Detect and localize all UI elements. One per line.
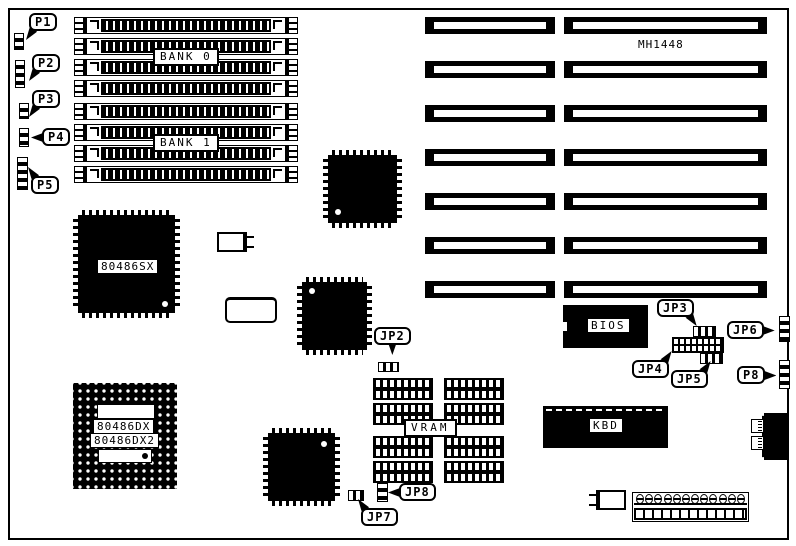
isa-slot: [425, 193, 555, 210]
callout-jp2: JP2: [374, 327, 411, 345]
isa-slot: [425, 17, 555, 34]
kbd-label: KBD: [589, 418, 623, 433]
keyboard-connector: [762, 413, 787, 460]
pga-key-bar: [97, 404, 155, 419]
jumper-jp5: [700, 353, 723, 364]
callout-jp3: JP3: [657, 299, 694, 317]
qfp-chip: [328, 155, 397, 223]
vram-socket: [373, 461, 433, 483]
isa-slot: [564, 17, 767, 34]
isa-slot: [425, 281, 555, 298]
simm-socket: [74, 80, 298, 97]
qfp-chip: [302, 282, 367, 350]
isa-slot: [425, 61, 555, 78]
simm-socket: [74, 166, 298, 183]
crystal-component: [217, 232, 245, 252]
isa-slot: [564, 281, 767, 298]
callout-p1: P1: [29, 13, 57, 31]
isa-slot: [564, 149, 767, 166]
isa-slot: [564, 61, 767, 78]
header-jp4: [672, 337, 724, 353]
callout-jp6: JP6: [727, 321, 764, 339]
callout-p5: P5: [31, 176, 59, 194]
isa-slot: [564, 193, 767, 210]
simm-socket: [74, 103, 298, 120]
callout-jp5: JP5: [671, 370, 708, 388]
connector-p1: [14, 33, 24, 50]
keyboard-connector-tab: [751, 419, 764, 433]
bios-label: BIOS: [587, 318, 630, 333]
callout-p4: P4: [42, 128, 70, 146]
jumper-jp2: [378, 362, 399, 372]
vram-socket: [444, 436, 504, 458]
callout-jp8: JP8: [399, 483, 436, 501]
isa-slot: [564, 105, 767, 122]
callout-p2: P2: [32, 54, 60, 72]
pin1-marker: [321, 441, 327, 447]
jumper-jp3: [693, 326, 716, 337]
qfp-chip: [268, 433, 335, 501]
callout-p3: P3: [32, 90, 60, 108]
vram-socket: [373, 378, 433, 400]
vram-label: VRAM: [404, 419, 457, 437]
isa-slot: [425, 237, 555, 254]
crystal-component: [598, 490, 626, 510]
jumper-jp8: [377, 483, 388, 502]
isa-slot: [564, 237, 767, 254]
oscillator-component: [225, 297, 277, 323]
vram-socket: [444, 378, 504, 400]
simm-socket: [74, 17, 298, 34]
connector-p8: [779, 360, 790, 389]
pin1-marker: [309, 288, 315, 294]
connector-jp6: [779, 316, 790, 342]
connector-p5: [17, 157, 28, 190]
jumper-jp7: [348, 490, 364, 501]
callout-p8: P8: [737, 366, 765, 384]
cpu-80486dx-label: 80486DX: [93, 419, 154, 434]
connector-p2: [15, 60, 25, 88]
power-connector-terminals: [634, 508, 747, 520]
pga-key-bar: [98, 449, 152, 463]
power-connector-pins: [634, 494, 747, 505]
power-connector: [632, 492, 749, 522]
pin1-marker: [335, 209, 341, 215]
callout-jp7: JP7: [361, 508, 398, 526]
callout-jp4: JP4: [632, 360, 669, 378]
cpu-80486dx2-label: 80486DX2: [90, 433, 159, 448]
keyboard-connector-tab: [751, 436, 764, 450]
isa-slot: [425, 105, 555, 122]
cpu-80486sx-label: 80486SX: [97, 259, 158, 274]
pin1-marker: [162, 301, 168, 307]
vram-socket: [373, 436, 433, 458]
connector-p3: [19, 103, 29, 119]
board-model-label: MH1448: [638, 38, 684, 51]
vram-socket: [444, 461, 504, 483]
pga-pin1-dot: [142, 453, 148, 459]
bank1-label: BANK 1: [153, 134, 219, 152]
motherboard-diagram: MH1448 BANK 0 BANK 1 80486SX 80486DX 804…: [0, 0, 796, 546]
bank0-label: BANK 0: [153, 48, 219, 66]
isa-slot: [425, 149, 555, 166]
connector-p4: [19, 128, 29, 147]
